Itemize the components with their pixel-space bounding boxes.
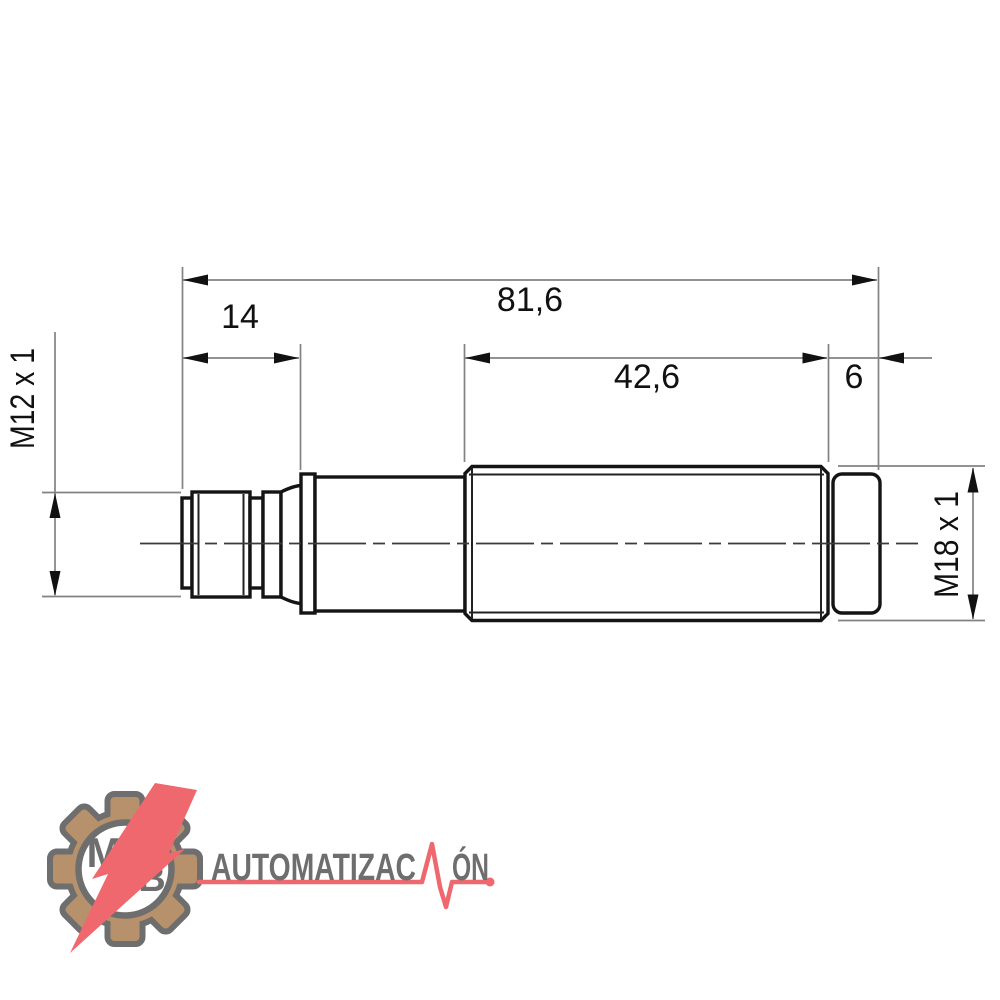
label-connector-length: 14 — [221, 298, 259, 336]
arrow-total-left — [183, 275, 208, 286]
label-cap-length: 6 — [845, 358, 864, 396]
brand-text-left: AUTOMATIZAC — [211, 847, 416, 889]
label-m18-thread: M18 x 1 — [928, 491, 966, 598]
coupling-nut-bulge — [281, 486, 302, 604]
arrow-body-right — [803, 353, 828, 364]
arrow-connector-left — [183, 353, 208, 364]
arrow-cap-right — [879, 353, 904, 364]
m12-thread-cylinder — [192, 492, 250, 597]
brand-text-right: ÓN — [452, 845, 489, 889]
arrow-m18-down — [968, 595, 979, 620]
arrow-m12-down — [50, 571, 61, 596]
label-m12-thread: M12 x 1 — [4, 348, 42, 449]
technical-drawing-canvas: 81,6 14 42,6 6 M12 x 1 M18 x 1 — [0, 0, 1000, 1000]
arrow-total-right — [852, 275, 877, 286]
arrow-m12-up — [50, 493, 61, 518]
arrow-connector-right — [274, 353, 299, 364]
label-body-length: 42,6 — [614, 358, 680, 396]
connector-ring — [263, 492, 281, 597]
brand-logo: M B AUTOMATIZAC ÓN — [50, 783, 495, 953]
arrow-body-left — [465, 353, 490, 364]
drawing-page: 81,6 14 42,6 6 M12 x 1 M18 x 1 — [0, 0, 1000, 1000]
arrow-m18-up — [968, 468, 979, 493]
label-total-length: 81,6 — [497, 281, 563, 319]
